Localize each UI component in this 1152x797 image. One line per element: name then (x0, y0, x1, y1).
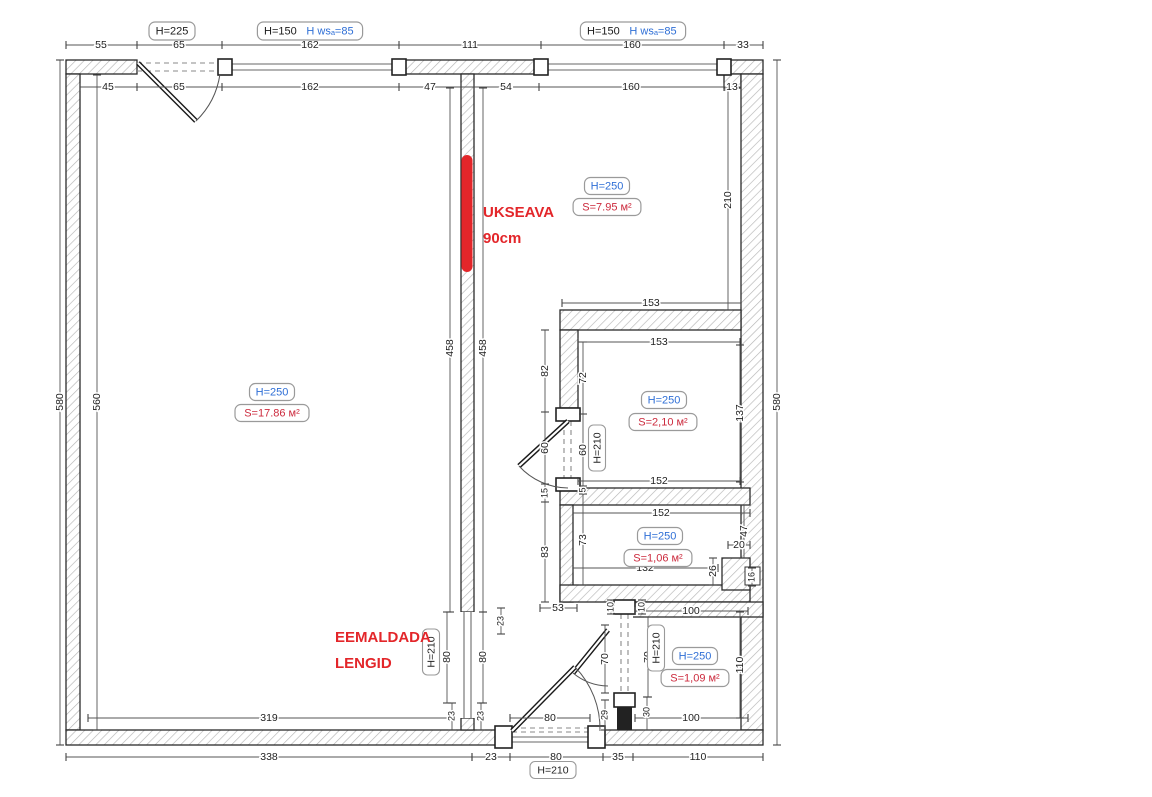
dimension-value: 47 (738, 525, 750, 537)
door-210-post-top (556, 408, 580, 421)
dimension-value: 458 (477, 339, 489, 357)
dimension-value: 5 (577, 487, 587, 492)
topleft-door-leaf-fill (138, 63, 196, 121)
wall-left (66, 74, 80, 730)
wall-room-109-left-stub (617, 707, 632, 730)
dimension-value: 54 (500, 81, 512, 93)
entrance-swing-arc (575, 667, 600, 731)
dimension-value: 65 (173, 81, 185, 93)
entrance-post-left (495, 726, 512, 748)
room-height-value: H=250 (256, 386, 289, 398)
dimension-value: 458 (444, 339, 456, 357)
dimension-value: 83 (539, 546, 551, 558)
wall-between-210-106 (560, 488, 750, 505)
wall-right (741, 74, 763, 730)
dimension-value: 13 (726, 81, 738, 93)
dimension-value: 73 (577, 534, 589, 546)
dimension-value: 47 (424, 81, 436, 93)
dimension-value: 23 (495, 616, 505, 626)
dimension-value: 70 (599, 653, 611, 665)
room-area-value: S=1,06 м² (633, 552, 683, 564)
floor-plan-canvas: 5565162111160334565162475416013580560580… (0, 0, 1152, 797)
dimension-value: 23 (446, 711, 456, 721)
height-label-text: H=150 (264, 25, 297, 37)
dimension-value: 15 (539, 488, 549, 498)
room-area-value: S=1,09 м² (670, 672, 720, 684)
red-annotation-text: EEMALDADA (335, 629, 431, 646)
door-109-post-top (614, 600, 635, 614)
wall-central-partition (461, 74, 474, 612)
dimension-value: 45 (102, 81, 114, 93)
door-109-swing-arc (573, 673, 608, 686)
height-label-text: H wsₐ=85 (306, 25, 353, 37)
dimension-value: 33 (737, 39, 749, 51)
dimension-value: 153 (650, 336, 668, 348)
window2-frame-left (534, 59, 548, 75)
dimension-value: 80 (441, 651, 453, 663)
wall-top-middle (399, 60, 541, 74)
dimension-value: 319 (260, 712, 278, 724)
ukseava-door-marker-bar (462, 155, 473, 272)
partition-opening-gap (460, 612, 475, 718)
entrance-post-right (588, 726, 605, 748)
dimension-value: 338 (260, 751, 278, 763)
room-height-value: H=250 (679, 650, 712, 662)
wall-room-210-left-upper (560, 330, 578, 408)
dimension-value: 80 (544, 712, 556, 724)
dimension-value: 10 (605, 602, 615, 612)
dimension-value: 210 (722, 191, 734, 209)
dimension-value: 72 (577, 372, 589, 384)
red-annotation-text: LENGID (335, 655, 392, 672)
labels-layer: H=225H=150H wsₐ=85H=150H wsₐ=85H=250S=17… (149, 22, 729, 779)
dimension-value: 23 (485, 751, 497, 763)
door-109-leaf-fill (573, 630, 608, 673)
dimension-value: 55 (95, 39, 107, 51)
dimension-value: 137 (734, 404, 746, 422)
height-label-text: H wsₐ=85 (629, 25, 676, 37)
door-height-value: H=210 (591, 432, 603, 463)
window1-frame-right (392, 59, 406, 75)
room-height-value: H=250 (644, 530, 677, 542)
wall-room-795-bottom (560, 310, 741, 330)
dimension-value: 162 (301, 81, 319, 93)
door-109-gap (616, 614, 633, 695)
dimension-value: 152 (650, 475, 668, 487)
dimension-value: 60 (577, 444, 589, 456)
red-annotation-text: 90cm (483, 230, 521, 247)
dimension-value: 80 (477, 651, 489, 663)
room-area-value: S=17.86 м² (244, 407, 300, 419)
door-109-post-bottom (614, 693, 635, 707)
dimension-value: 111 (462, 39, 478, 51)
height-label-text: H=150 (587, 25, 620, 37)
dimension-value: 60 (539, 442, 551, 454)
wall-top-left (66, 60, 137, 74)
wall-bottom-left (66, 730, 496, 745)
window2-frame-right (717, 59, 731, 75)
dimension-value: 580 (771, 393, 783, 411)
dimension-value: 560 (91, 393, 103, 411)
dimension-value: 53 (552, 602, 564, 614)
dimension-value: 82 (539, 365, 551, 377)
room-area-value: S=7.95 м² (582, 201, 632, 213)
door-height-value: H=210 (537, 764, 568, 776)
room-height-value: H=250 (648, 394, 681, 406)
floor-plan-page: 5565162111160334565162475416013580560580… (0, 0, 1152, 797)
room-area-value: S=2,10 м² (638, 416, 688, 428)
dimension-value: 110 (690, 751, 707, 763)
dimension-value: 152 (652, 507, 670, 519)
door-height-label: H=210 (530, 762, 576, 779)
dimension-value: 580 (54, 393, 66, 411)
dimension-value: 10 (636, 602, 646, 612)
door-height-value: H=210 (650, 632, 662, 663)
dimension-value: 23 (475, 711, 485, 721)
dimension-value: 100 (682, 712, 700, 724)
wall-central-partition-stub (461, 718, 474, 730)
dimension-value: 160 (622, 81, 640, 93)
dimension-value: 35 (612, 751, 624, 763)
height-label-text: H=225 (156, 25, 189, 37)
dimension-value: 29 (599, 710, 609, 720)
topleft-door-swing-arc (196, 74, 220, 121)
window1-frame-left (218, 59, 232, 75)
dimension-value: 153 (642, 297, 660, 309)
door-height-label: H=210 (648, 625, 665, 671)
dimension-value: 16 (746, 572, 756, 582)
dimension-value: 110 (734, 656, 746, 673)
red-annotation-text: UKSEAVA (483, 204, 554, 221)
room-height-value: H=250 (591, 180, 624, 192)
door-height-label: H=210 (589, 425, 606, 471)
dimension-value: 26 (707, 565, 719, 577)
dimension-value: 30 (641, 707, 651, 717)
dimension-value: 100 (682, 605, 700, 617)
red-notes-layer: UKSEAVA90cmEEMALDADALENGID (335, 204, 554, 672)
dimension-value: 20 (733, 539, 745, 551)
wall-bottom-right (604, 730, 763, 745)
